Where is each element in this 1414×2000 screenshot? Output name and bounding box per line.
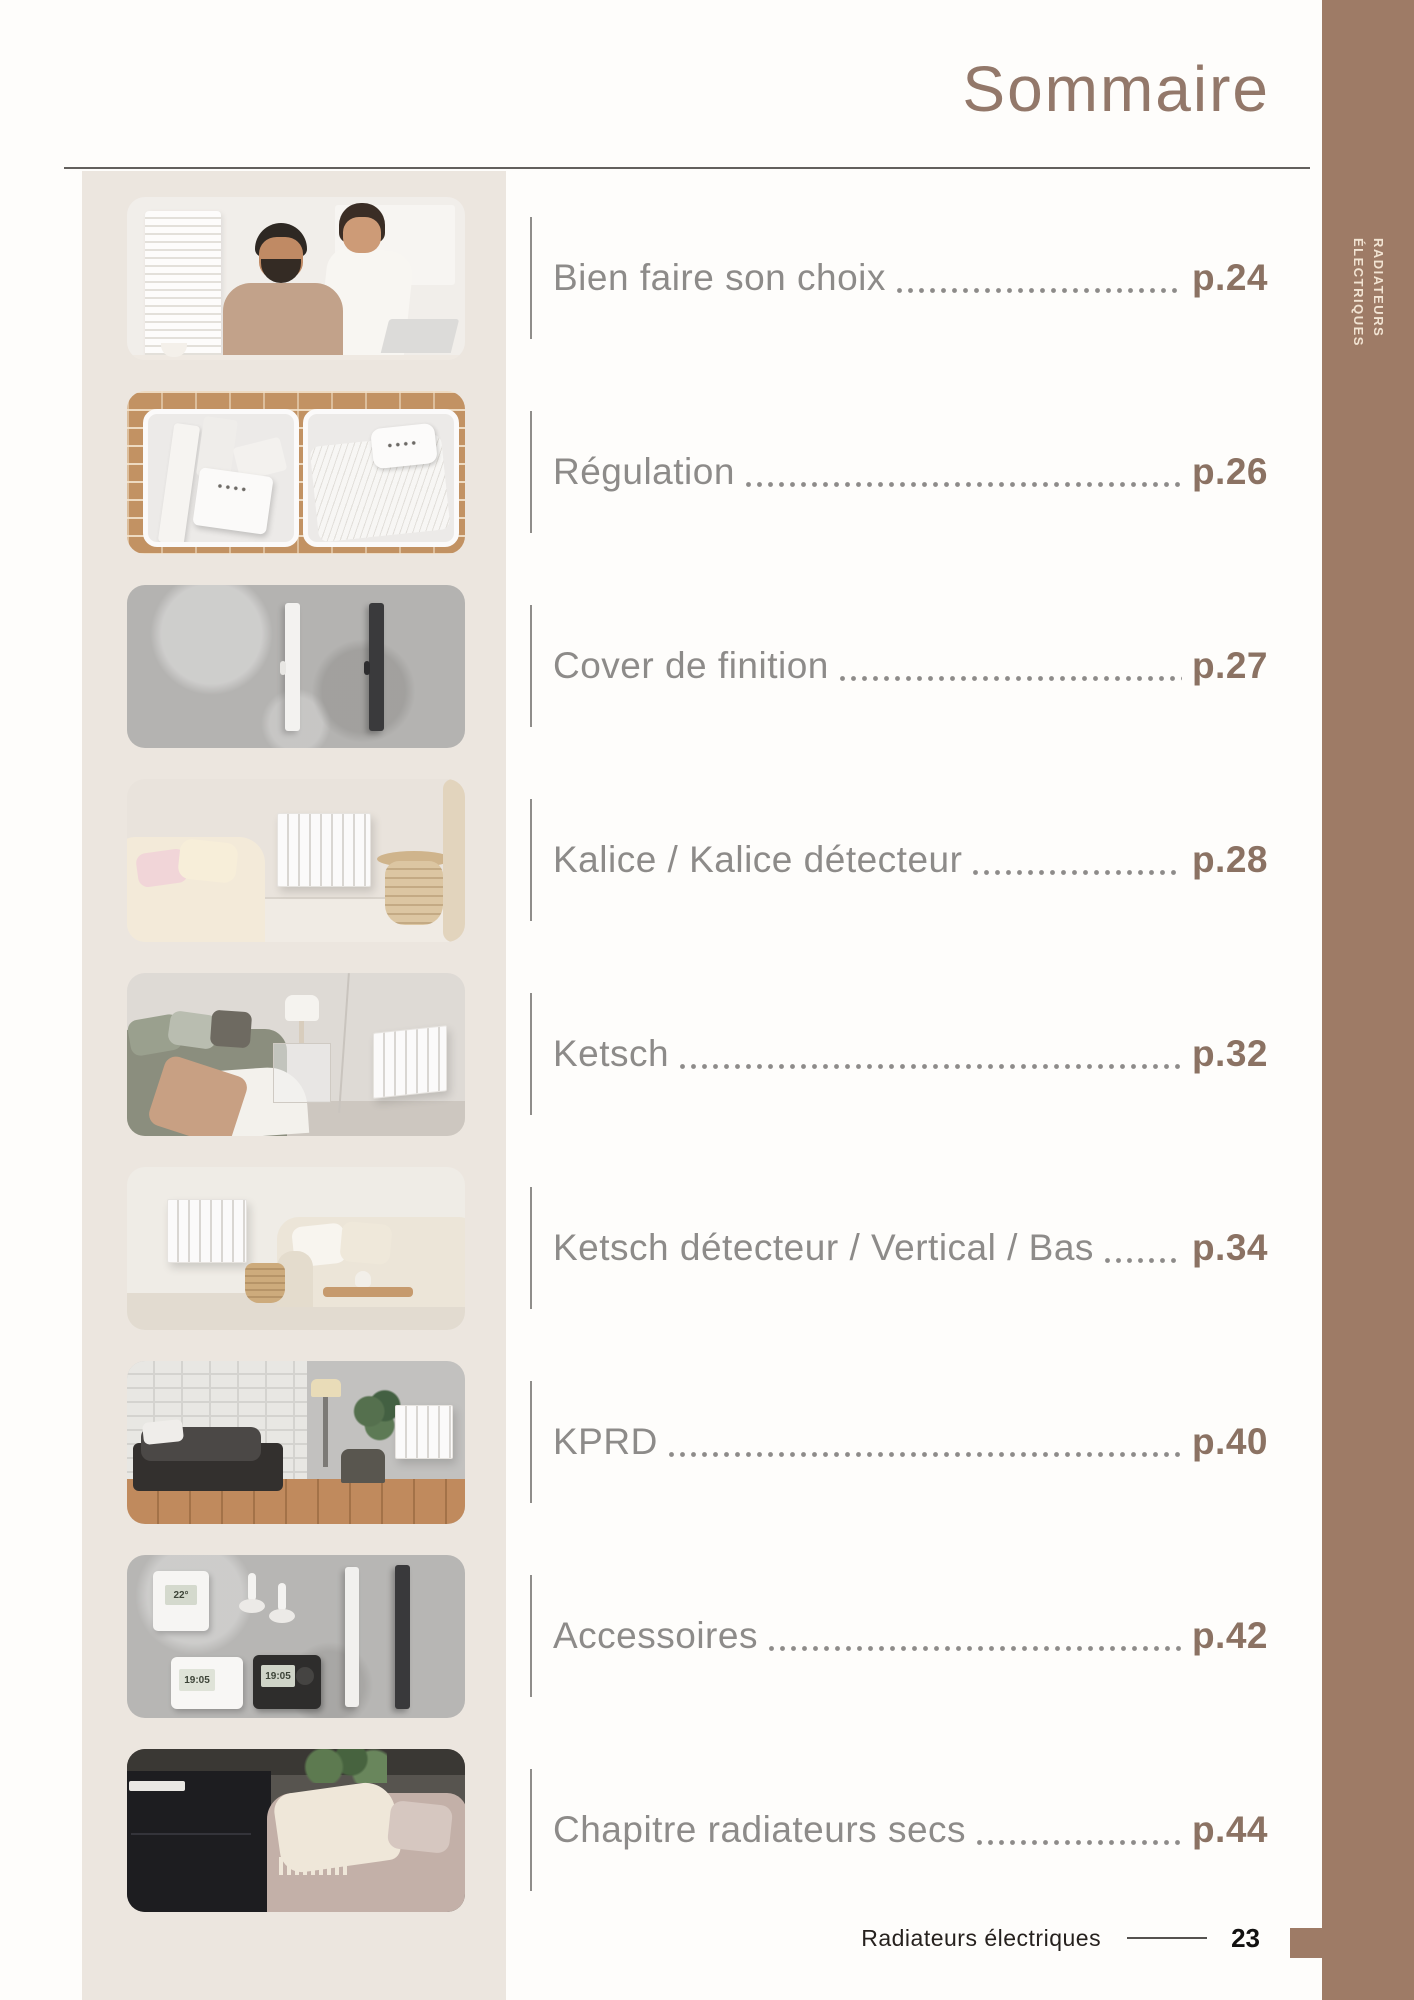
entry-label: Chapitre radiateurs secs [553, 1809, 966, 1851]
radiator-closeup-right [303, 409, 459, 547]
dot-leader [766, 1646, 1182, 1651]
toc-entry-chapitre-radiateurs-secs[interactable]: Chapitre radiateurs secs p.44 [530, 1769, 1268, 1891]
thermostat-display: 22° [165, 1585, 197, 1605]
programmer-display: 19:05 [261, 1665, 295, 1687]
white-cover-bar [285, 603, 300, 731]
toc-entry-regulation[interactable]: Régulation p.26 [530, 411, 1268, 533]
dot-leader [666, 1452, 1182, 1457]
toc-entry-kalice[interactable]: Kalice / Kalice détecteur p.28 [530, 799, 1268, 921]
chapter-side-label: RADIATEURS ÉLECTRIQUES [1322, 238, 1414, 347]
toc-entry-kprd[interactable]: KPRD p.40 [530, 1381, 1268, 1503]
toc-entry-bien-faire-son-choix[interactable]: Bien faire son choix p.24 [530, 217, 1268, 339]
entry-page-number: p.34 [1192, 1227, 1268, 1269]
toc-entry-cover-de-finition[interactable]: Cover de finition p.27 [530, 605, 1268, 727]
radiator-illustration [167, 1199, 247, 1263]
toc-entry-ketsch-detecteur[interactable]: Ketsch détecteur / Vertical / Bas p.34 [530, 1187, 1268, 1309]
control-panel-illustration [192, 467, 273, 535]
side-label-line2: ÉLECTRIQUES [1348, 238, 1368, 347]
thumbnail-regulation[interactable] [127, 391, 465, 554]
thumbnail-accessoires[interactable]: 22° 19:05 19:05 [127, 1555, 465, 1718]
entry-label: Ketsch [553, 1033, 669, 1075]
header-divider [64, 167, 1310, 169]
entry-page-number: p.44 [1192, 1809, 1268, 1851]
entry-tick [530, 993, 532, 1115]
thumbnail-kalice[interactable] [127, 779, 465, 942]
thumbnail-ketsch[interactable] [127, 973, 465, 1136]
thumbnail-ketsch-detecteur[interactable] [127, 1167, 465, 1330]
entry-page-number: p.40 [1192, 1421, 1268, 1463]
coffee-table-illustration [323, 1287, 413, 1297]
thumbnail-kprd[interactable] [127, 1361, 465, 1524]
dot-leader [894, 288, 1182, 293]
radiator-closeup-left [143, 409, 299, 547]
black-cabinet-illustration [127, 1771, 271, 1912]
chapter-side-tab [1290, 1928, 1324, 1958]
entry-page-number: p.27 [1192, 645, 1268, 687]
laptop-illustration [381, 319, 459, 353]
entry-tick [530, 799, 532, 921]
white-cover-bar [345, 1567, 359, 1707]
wall-bracket-illustration [269, 1583, 295, 1623]
programmer-black-illustration: 19:05 [253, 1655, 321, 1709]
thumbnail-bien-faire-son-choix[interactable] [127, 197, 465, 360]
plant-illustration [297, 1749, 387, 1783]
entry-tick [530, 1187, 532, 1309]
basket-illustration [385, 861, 443, 925]
entry-tick [530, 411, 532, 533]
wall-bracket-illustration [239, 1573, 265, 1613]
entry-tick [530, 1575, 532, 1697]
man-figure [223, 283, 343, 360]
page-title: Sommaire [0, 52, 1270, 126]
footer-dash [1127, 1937, 1207, 1939]
dot-leader [970, 870, 1182, 875]
black-cover-bar [395, 1565, 410, 1709]
entry-tick [530, 605, 532, 727]
entry-label: Bien faire son choix [553, 257, 886, 299]
nightstand-illustration [273, 1043, 331, 1103]
black-cover-bar [369, 603, 384, 731]
entry-label: Accessoires [553, 1615, 758, 1657]
entry-label: Ketsch détecteur / Vertical / Bas [553, 1227, 1094, 1269]
footer-section-label: Radiateurs électriques [861, 1925, 1101, 1952]
entry-page-number: p.32 [1192, 1033, 1268, 1075]
dot-leader [677, 1064, 1182, 1069]
thumbnail-cover-de-finition[interactable] [127, 585, 465, 748]
radiator-illustration [373, 1025, 447, 1099]
dot-leader [1102, 1258, 1182, 1263]
dot-leader [837, 676, 1182, 681]
floor-lamp-illustration [311, 1379, 341, 1397]
entry-label: Kalice / Kalice détecteur [553, 839, 962, 881]
entry-label: Régulation [553, 451, 735, 493]
control-pod-illustration [370, 423, 438, 469]
toc-entry-ketsch[interactable]: Ketsch p.32 [530, 993, 1268, 1115]
window-blind [145, 211, 221, 360]
entry-page-number: p.24 [1192, 257, 1268, 299]
dot-leader [743, 482, 1182, 487]
programmer-display: 19:05 [179, 1669, 215, 1691]
entry-tick [530, 1381, 532, 1503]
entry-label: Cover de finition [553, 645, 829, 687]
entry-page-number: p.26 [1192, 451, 1268, 493]
basket-illustration [245, 1263, 285, 1303]
entry-page-number: p.28 [1192, 839, 1268, 881]
dot-leader [974, 1840, 1182, 1845]
programmer-white-illustration: 19:05 [171, 1657, 243, 1709]
radiator-illustration [395, 1405, 453, 1459]
entry-label: KPRD [553, 1421, 658, 1463]
thumbnail-radiateurs-secs[interactable] [127, 1749, 465, 1912]
radiator-illustration [277, 813, 371, 887]
toc-entry-accessoires[interactable]: Accessoires p.42 [530, 1575, 1268, 1697]
side-label-line1: RADIATEURS [1368, 238, 1388, 347]
footer-page-number: 23 [1231, 1923, 1260, 1954]
entry-tick [530, 217, 532, 339]
lamp-illustration [285, 995, 319, 1021]
entry-page-number: p.42 [1192, 1615, 1268, 1657]
wall-thermostat-illustration: 22° [153, 1571, 209, 1631]
entry-tick [530, 1769, 532, 1891]
page-footer: Radiateurs électriques 23 [700, 1916, 1260, 1960]
